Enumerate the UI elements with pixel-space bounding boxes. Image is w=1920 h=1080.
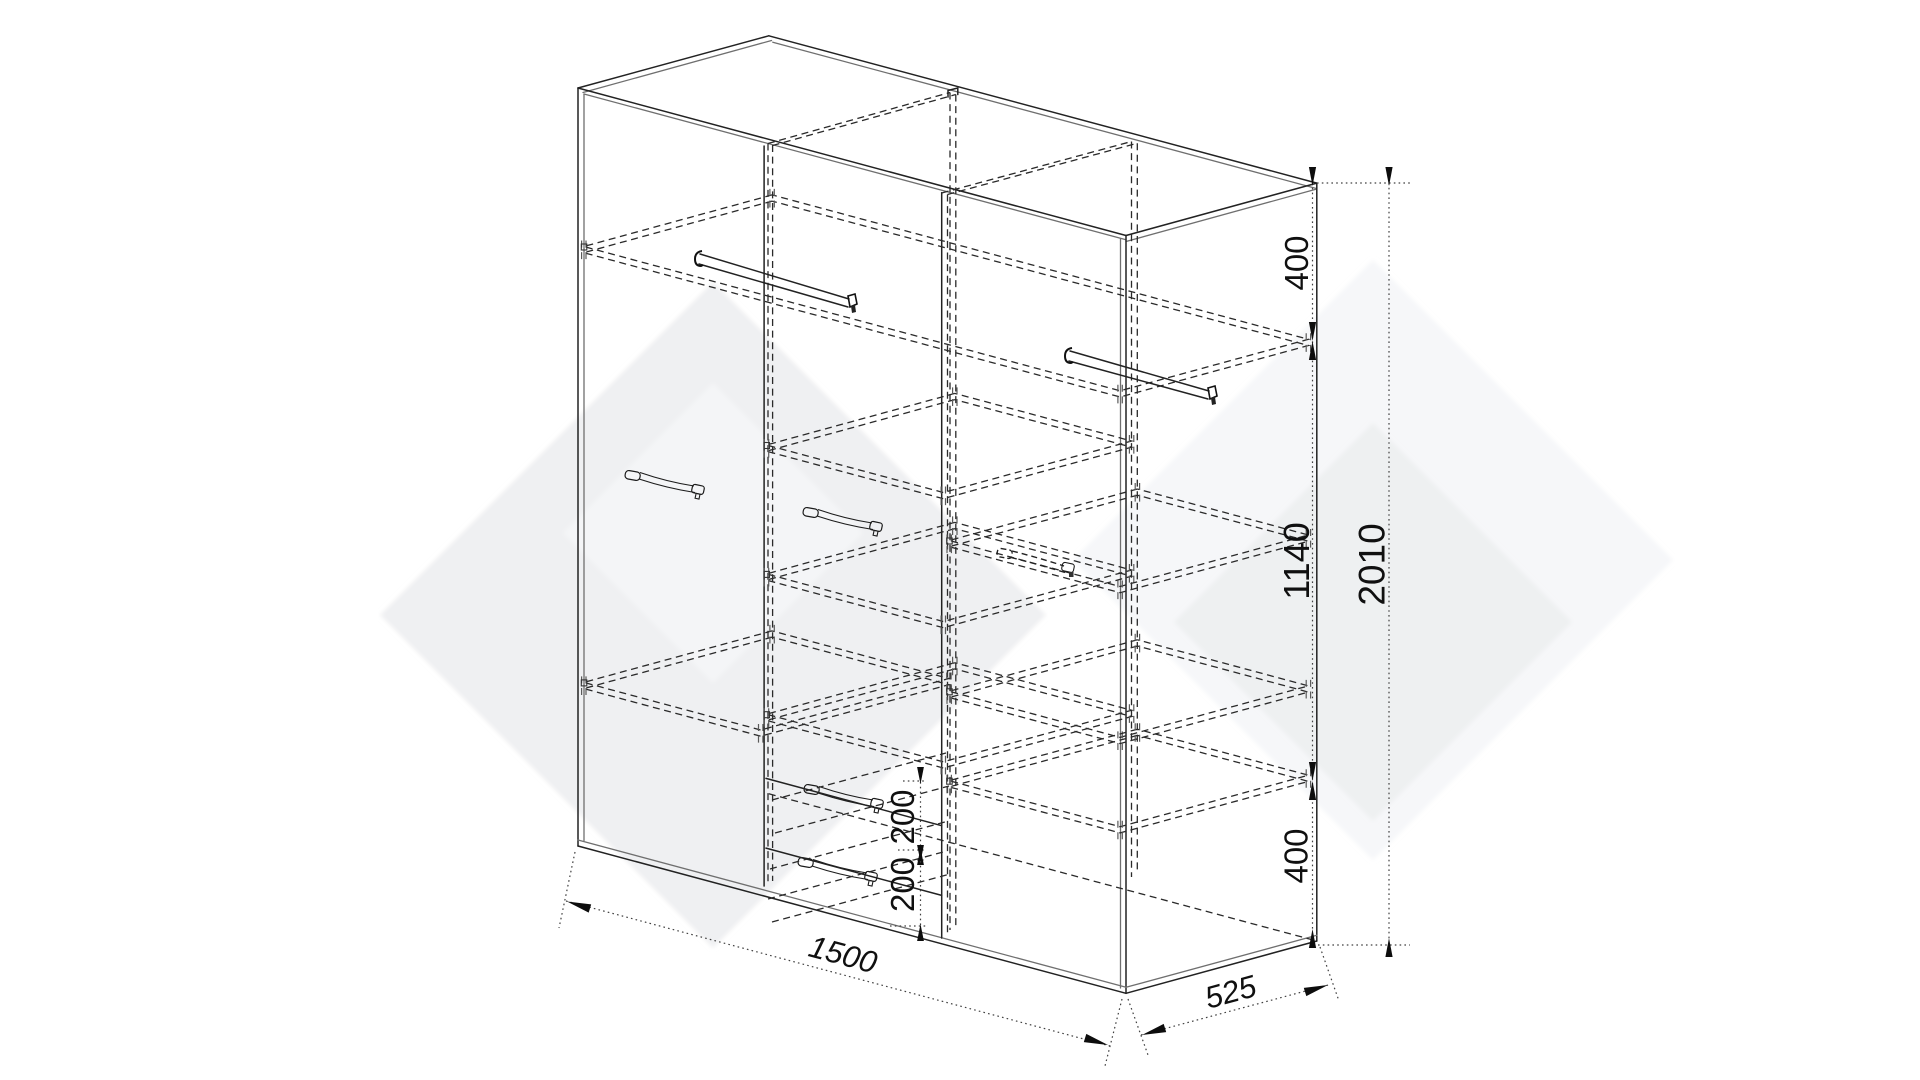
svg-text:400: 400 [1278,828,1315,883]
svg-text:200: 200 [884,857,921,912]
svg-text:2010: 2010 [1352,523,1393,605]
svg-text:200: 200 [884,789,921,844]
svg-text:400: 400 [1278,235,1315,290]
svg-text:1140: 1140 [1276,522,1317,599]
